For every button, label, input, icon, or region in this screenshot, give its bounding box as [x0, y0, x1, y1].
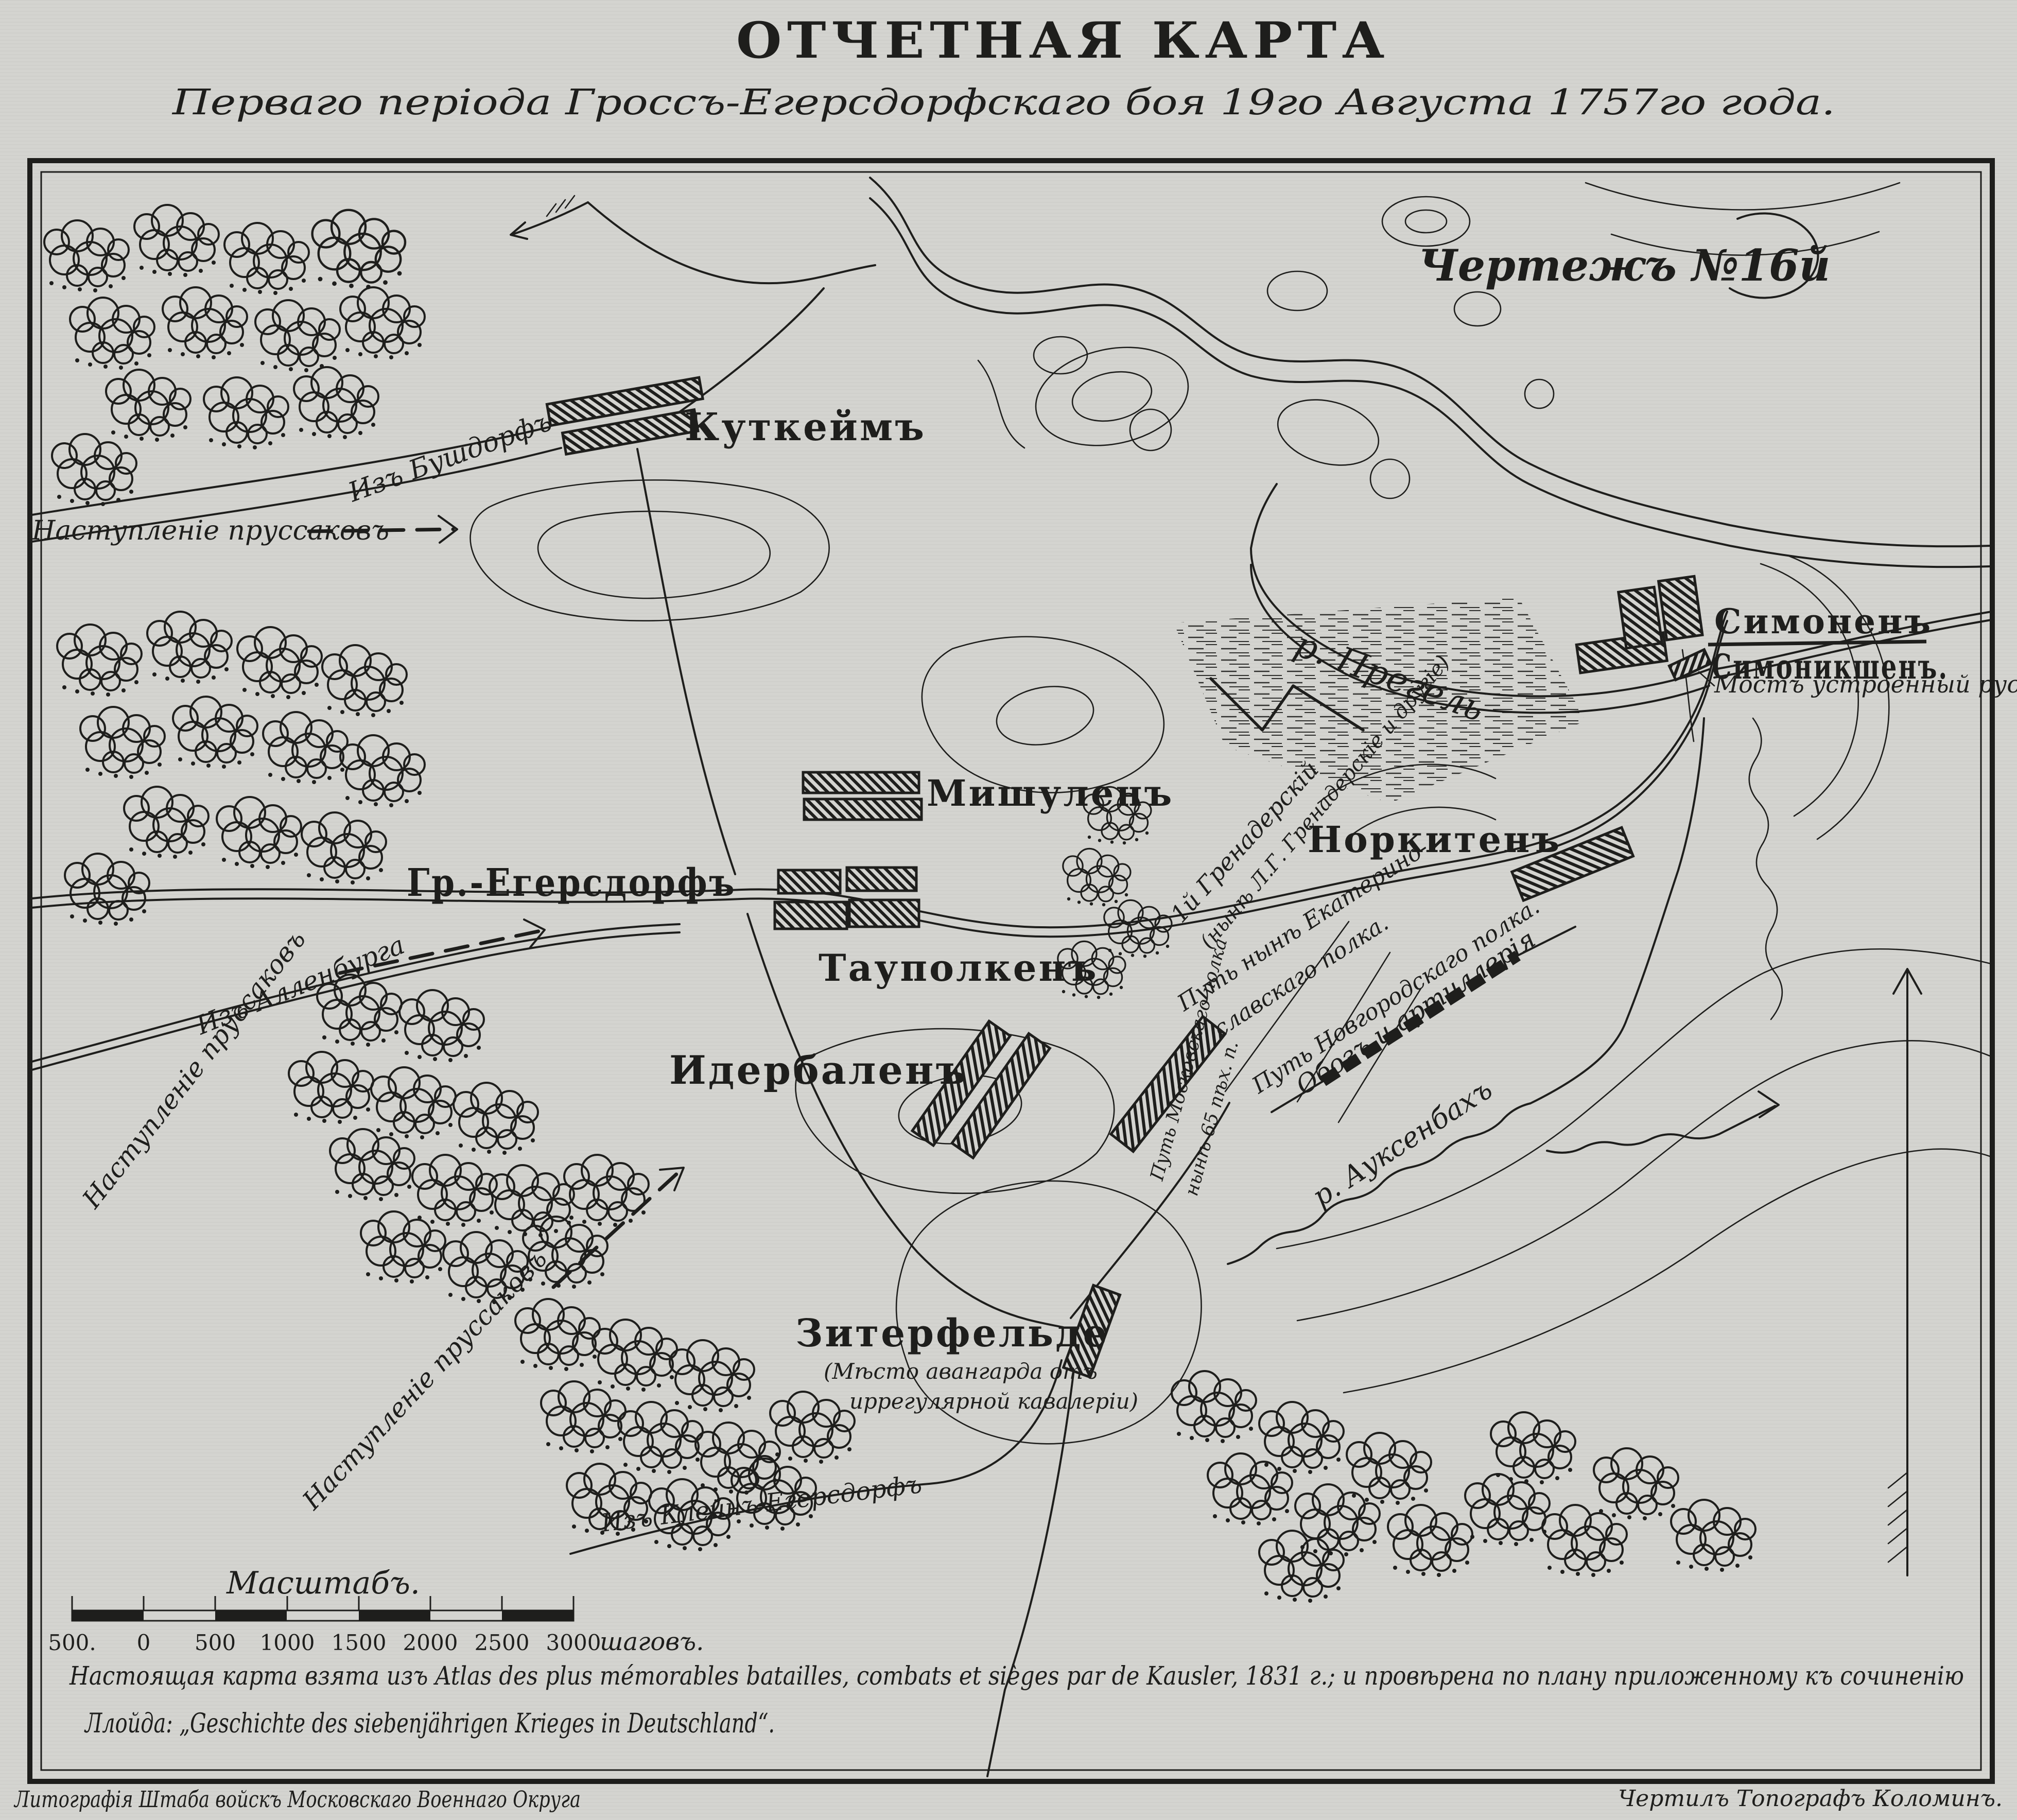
- label-advance-1: Наступленіе пруссаковъ: [31, 515, 389, 546]
- label-iderbalen: Идербаленъ: [669, 1047, 968, 1093]
- mishulen-mark: [803, 772, 919, 793]
- source-note-line1: Настоящая карта взята изъ Atlas des plus…: [69, 1661, 1964, 1691]
- scale-bar: Масштабъ. 500. 0 500 1000 1500 2000 2500…: [48, 1565, 704, 1656]
- swamp-area: [1174, 597, 1586, 803]
- label-gross-egersdorf: Гр.-Егерсдорфъ: [407, 861, 736, 905]
- source-note-line2: Ллойда: „Geschichte des siebenjährigen K…: [84, 1708, 775, 1739]
- map-header: ОТЧЕТНАЯ КАРТА Перваго періода Гроссъ-Ег…: [171, 11, 1835, 298]
- label-bridge-note: Мостъ устроенный русскими: [1714, 670, 2017, 698]
- scale-caption: Масштабъ.: [226, 1565, 420, 1601]
- forest-west: [57, 612, 425, 926]
- scale-unit: шаговъ.: [600, 1627, 704, 1656]
- scale-tick: 1500: [332, 1630, 387, 1655]
- scale-tick: 0: [137, 1630, 151, 1655]
- forest-north-west: [44, 205, 425, 506]
- map-labels: Куткеймъ Мишуленъ Гр.-Егерсдорфъ Тауполк…: [31, 405, 2017, 1538]
- page-subtitle: Перваго періода Гроссъ-Егерсдорфскаго бо…: [171, 82, 1835, 123]
- page-title: ОТЧЕТНАЯ КАРТА: [736, 11, 1390, 70]
- scale-tick: 2500: [475, 1630, 530, 1655]
- north-arrow: [1888, 969, 1921, 1575]
- label-mishulen: Мишуленъ: [927, 772, 1174, 814]
- scale-tick: 2000: [403, 1630, 458, 1655]
- label-iz-klein-egersdorf: Изъ Клейнъ-Егерсдорфъ: [599, 1470, 924, 1538]
- label-simonen: Симоненъ: [1714, 601, 1933, 642]
- drawing-number: Чертежъ №16й: [1418, 240, 1830, 291]
- scale-tick: 500.: [48, 1630, 96, 1655]
- label-kutkeim: Куткеймъ: [685, 405, 926, 449]
- scale-tick: 1000: [260, 1630, 315, 1655]
- forest-south-east: [1172, 1371, 1755, 1603]
- label-advance-2: Наступленіе пруссаковъ: [76, 925, 311, 1214]
- gross-egersdorf-mark: [775, 868, 919, 929]
- label-norkiten: Норкитенъ: [1308, 818, 1561, 861]
- kutkeim-mark: [547, 377, 708, 456]
- road-exit-arrow: [511, 196, 588, 239]
- scale-tick: 500: [195, 1630, 236, 1655]
- label-siterfelde-note2: иррегулярной кавалеріи): [849, 1389, 1138, 1414]
- map-footer: Настоящая карта взята изъ Atlas des plus…: [13, 1661, 2003, 1813]
- credit-lithography: Литографія Штаба войскъ Московскаго Воен…: [13, 1787, 581, 1813]
- terrain-contours: [471, 183, 1991, 1444]
- label-advance-3: Наступленіе пруссаковъ: [297, 1244, 553, 1516]
- battle-map-svg: ОТЧЕТНАЯ КАРТА Перваго періода Гроссъ-Ег…: [0, 0, 2017, 1818]
- label-taupolken: Тауполкенъ: [819, 946, 1099, 990]
- label-siterfelde-note1: (Мѣсто авангарда отъ: [824, 1359, 1098, 1384]
- credit-topographer: Чертилъ Топографъ Коломинъ.: [1618, 1786, 2003, 1812]
- forest-centre-west: [289, 975, 649, 1304]
- scale-tick-labels: 500. 0 500 1000 1500 2000 2500 3000: [48, 1630, 601, 1655]
- scale-tick: 3000: [546, 1630, 601, 1655]
- map-page: ОТЧЕТНАЯ КАРТА Перваго періода Гроссъ-Ег…: [0, 0, 2017, 1818]
- label-auksenbach-river: р. Ауксенбахъ: [1307, 1073, 1498, 1213]
- label-siterfelde: Зитерфельде: [795, 1311, 1109, 1356]
